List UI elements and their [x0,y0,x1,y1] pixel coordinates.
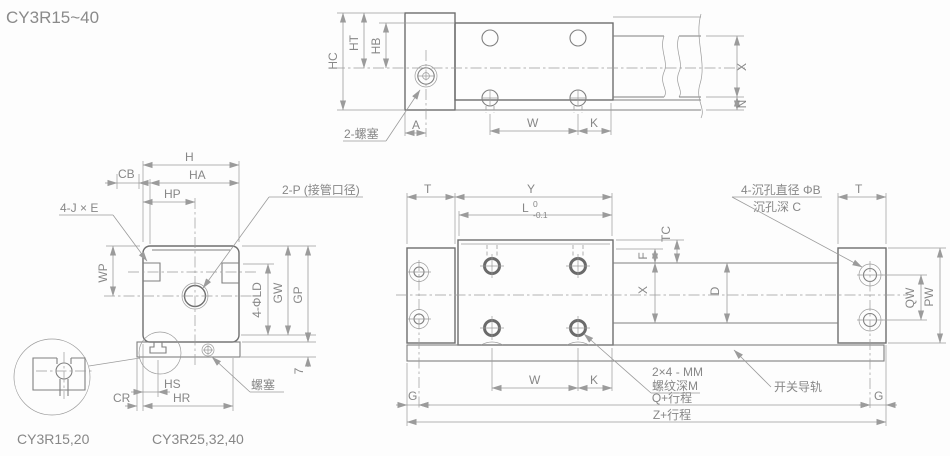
dim-t-right: T [855,182,863,196]
dim-pw: PW [922,287,936,307]
plan-thread-leader: 2×4 - MM 螺纹深M [584,334,703,393]
dim-z-stroke: Z+行程 [653,407,691,422]
dim-ht: HT [347,34,361,51]
dim-cr: CR [113,391,131,405]
front-top-dimensions: H HA HP CB [105,150,239,244]
thread-label-2: 螺纹深M [652,379,698,393]
plan-left-cap [407,248,455,343]
plan-counterbore-leader: 4-沉孔直径 ΦB 沉孔深 C [732,183,862,267]
counterbore-label-1: 4-沉孔直径 ΦB [741,183,821,197]
port-label: 2-P (接管口径) [282,182,360,197]
dim-wp: WP [96,263,110,282]
dim-g-left: G [408,389,417,403]
side-dimensions: HC HT HB A W K X N [326,13,749,136]
dim-l-tol-bottom: -0.1 [533,210,548,220]
dim-cb: CB [118,167,135,181]
plan-wk-dimensions: W K [492,348,612,391]
front-view: H HA HP CB WP 4-ΦLD GW GP 7 [14,150,363,447]
dim-k: K [590,116,598,130]
drawing-page: CY3R15~40 [0,0,950,456]
dim-w-plan: W [529,373,541,387]
dim-qw: QW [903,287,917,308]
dim-hr: HR [173,391,191,405]
front-body [143,246,239,342]
front-right-lug [222,263,239,283]
rail-label: 开关导轨 [774,380,822,394]
dim-gp: GP [291,286,305,303]
front-t-slot [150,342,166,353]
dim-g-right: G [874,389,883,403]
dim-gw: GW [271,282,285,303]
dim-f: F [636,252,650,259]
plan-right-cap-holes [857,261,883,408]
dim-hc: HC [326,52,340,70]
dim-t-left: T [424,182,432,196]
plan-right-dimensions: QW PW [882,248,946,343]
dim-hb: HB [369,38,383,55]
front-wp-dimension: WP [96,246,140,296]
model-label-small: CY3R15,20 [17,431,90,447]
dim-d: D [708,286,722,295]
side-view: HC HT HB A W K X N 2-螺塞 [326,13,749,141]
dim-rail-height: 7 [292,367,306,374]
dim-ld: 4-ΦLD [250,282,264,318]
dim-h: H [185,150,194,164]
plan-switch-rail [407,345,884,361]
front-bottom-dimensions: HS HR CR [113,344,233,411]
dim-ha: HA [189,168,206,182]
plan-left-cap-holes [407,260,431,408]
thread-label-1: 2×4 - MM [652,365,703,379]
page-title: CY3R15~40 [6,8,99,27]
front-right-dimensions: 4-ΦLD GW GP 7 [241,246,316,374]
front-rail [137,342,240,357]
dim-x-plan: X [636,286,650,294]
corner-screws-label: 4-J × E [60,201,98,215]
front-plug-leader: 螺塞 [212,357,284,392]
dim-k-plan: K [590,373,598,387]
dim-hs: HS [164,377,181,391]
dim-l-tol-top: 0 [533,199,538,209]
plan-rod-dimensions: TC F X D [616,226,727,323]
dim-w: W [527,116,539,130]
dim-y: Y [527,182,535,196]
front-plug-label: 螺塞 [251,377,275,392]
plan-rail-leader: 开关导轨 [734,350,822,394]
front-plug-screw [202,344,214,356]
dim-a: A [412,118,420,132]
dim-tc: TC [659,226,673,242]
side-plug-label: 2-螺塞 [344,126,379,141]
front-corner-screws-leader: 4-J × E [59,201,147,261]
dim-n: N [735,100,749,109]
plan-right-cap [838,248,886,343]
model-label-large: CY3R25,32,40 [152,431,244,447]
dim-hp: HP [164,187,181,201]
plan-slider [458,240,613,345]
side-slider [455,23,613,100]
technical-drawing: CY3R15~40 [0,0,950,456]
plan-view: T Y T L 0 -0.1 TC F X D QW [396,182,946,426]
dim-x-side: X [735,63,749,71]
dim-l: L [522,201,529,215]
side-end-cap [405,13,455,110]
